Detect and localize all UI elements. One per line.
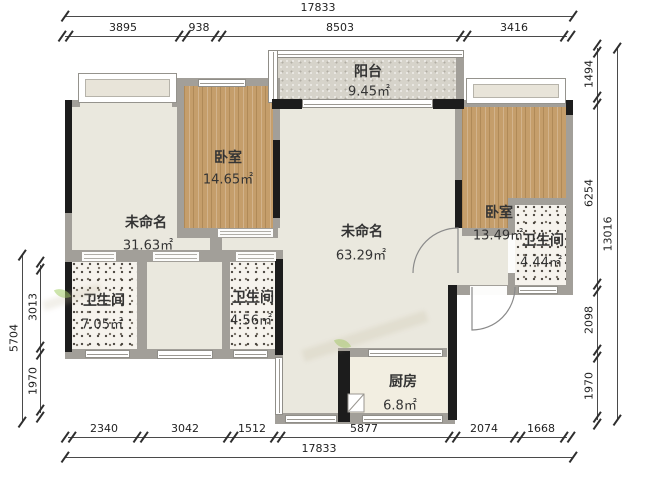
dim-top-seg-2: 938	[189, 21, 210, 34]
dim-bottom-seg-4: 5877	[350, 422, 378, 435]
dim-top-seg-4: 3416	[500, 21, 528, 34]
room-name-unnamed-main: 未命名	[341, 221, 383, 241]
dimension-line	[65, 36, 567, 37]
dim-left-seg-1: 3013	[27, 293, 40, 321]
dim-right-total: 13016	[602, 217, 615, 252]
room-name-bedroom-right: 卧室	[485, 202, 513, 222]
dim-left-total: 5704	[8, 324, 21, 352]
room-name-balcony: 阳台	[354, 61, 382, 81]
dim-top-total: 17833	[301, 1, 336, 14]
room-area-balcony: 9.45㎡	[348, 81, 390, 100]
dim-right-seg-1: 1494	[583, 60, 596, 88]
room-name-bedroom-left: 卧室	[214, 147, 242, 167]
room-area-bath-left: 7.05㎡	[81, 314, 123, 333]
dim-right-seg-4: 1970	[583, 372, 596, 400]
room-area-bath-mid: 4.56㎡	[230, 310, 272, 329]
bedroom-door-arc	[413, 228, 458, 273]
dim-bottom-seg-2: 3042	[171, 422, 199, 435]
dim-bottom-seg-5: 2074	[470, 422, 498, 435]
room-name-bath-mid: 卫生间	[232, 287, 274, 307]
room-area-kitchen: 6.8㎡	[383, 395, 417, 414]
dimension-line	[40, 265, 41, 413]
dim-top-seg-1: 3895	[109, 21, 137, 34]
room-name-kitchen: 厨房	[389, 371, 417, 391]
room-area-bedroom-right: 13.49㎡	[473, 225, 523, 244]
dimension-line	[22, 255, 23, 422]
room-area-unnamed-left: 31.63㎡	[123, 235, 173, 254]
dim-right-seg-2: 6254	[583, 179, 596, 207]
dim-bottom-seg-3: 1512	[238, 422, 266, 435]
dim-right-seg-3: 2098	[583, 306, 596, 334]
dim-left-seg-2: 1970	[27, 367, 40, 395]
dimension-line	[65, 16, 573, 17]
room-area-bath-right: 4.44㎡	[520, 252, 562, 271]
dim-bottom-total: 17833	[302, 442, 337, 455]
room-area-bedroom-left: 14.65㎡	[203, 169, 253, 188]
floor-plan: 阳台 9.45㎡ 卧室 14.65㎡ 未命名 31.63㎡ 未命名 63.29㎡…	[0, 0, 649, 488]
dimension-line	[617, 48, 618, 420]
dim-top-seg-3: 8503	[326, 21, 354, 34]
entry-door-arc	[472, 287, 515, 330]
dim-bottom-seg-1: 2340	[90, 422, 118, 435]
room-area-unnamed-main: 63.29㎡	[336, 245, 386, 264]
room-name-bath-right: 卫生间	[522, 230, 564, 250]
dimension-line	[65, 457, 573, 458]
room-name-unnamed-left: 未命名	[125, 212, 167, 232]
dim-bottom-seg-6: 1668	[527, 422, 555, 435]
